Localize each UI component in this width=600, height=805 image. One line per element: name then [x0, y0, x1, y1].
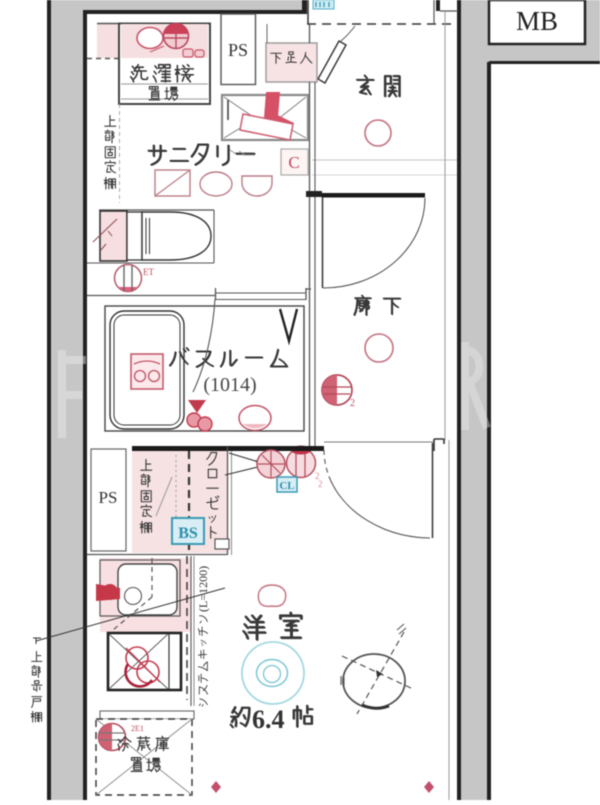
- svg-text:2: 2: [318, 479, 323, 489]
- svg-text:MB: MB: [516, 6, 558, 36]
- svg-text:C: C: [288, 153, 299, 172]
- svg-text:CL: CL: [279, 480, 294, 492]
- svg-text:2: 2: [350, 398, 355, 409]
- svg-text:ET: ET: [143, 267, 154, 277]
- svg-text:(L=1200): (L=1200): [196, 566, 210, 612]
- svg-text:6.4: 6.4: [252, 705, 285, 734]
- svg-text:PS: PS: [99, 488, 118, 507]
- svg-text:(1014): (1014): [203, 374, 256, 396]
- svg-text:BS: BS: [178, 525, 198, 542]
- svg-text:2E1: 2E1: [131, 724, 144, 733]
- svg-text:PS: PS: [228, 40, 248, 60]
